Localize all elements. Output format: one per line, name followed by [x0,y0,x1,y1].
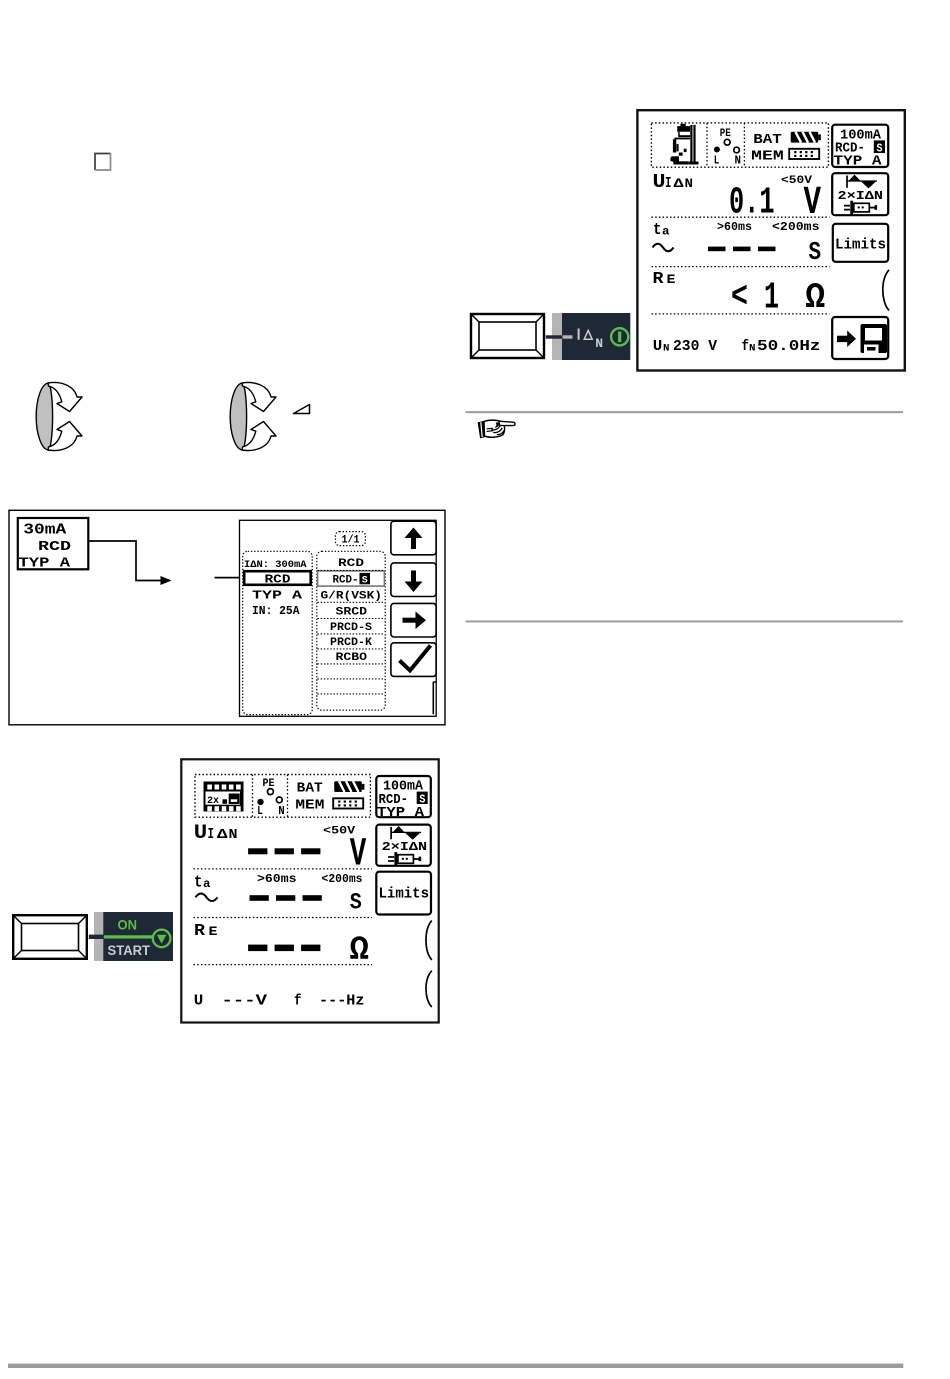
svg-text:IN: 25A: IN: 25A [252,605,300,618]
svg-text:S: S [350,890,362,916]
svg-text:Limits: Limits [835,237,886,254]
svg-text:>60ms: >60ms [257,872,297,886]
svg-text:RCBO: RCBO [336,652,368,664]
svg-text:S: S [362,574,368,586]
svg-text:2x: 2x [207,795,220,807]
svg-text:---Hz: ---Hz [319,993,365,1010]
svg-text:R: R [653,270,665,289]
svg-text:Limits: Limits [379,886,430,903]
svg-text:L: L [714,154,720,168]
svg-text:MEM: MEM [751,149,784,165]
svg-text:t: t [194,874,203,893]
svg-text:N: N [685,176,694,191]
svg-text:t: t [653,221,662,240]
svg-text:30mA: 30mA [23,522,66,539]
svg-text:I: I [665,175,672,192]
svg-text:E: E [667,272,676,287]
svg-text:N: N [278,804,285,818]
svg-text:2×IΔN: 2×IΔN [382,841,428,854]
svg-text:BAT: BAT [297,780,323,796]
svg-text:0.1: 0.1 [729,182,775,225]
svg-text:N: N [749,344,756,355]
svg-text:G/R(VSK): G/R(VSK) [321,591,383,603]
svg-text:S: S [877,141,883,155]
svg-text:RCD: RCD [338,558,365,570]
svg-text:>60ms: >60ms [717,220,752,234]
svg-text:MEM: MEM [295,797,324,813]
svg-text:Ω: Ω [350,932,370,969]
svg-text:a: a [662,225,670,239]
svg-text:PE: PE [720,128,731,140]
svg-text:V: V [350,832,367,877]
svg-text:a: a [203,877,211,891]
svg-text:f: f [294,993,302,1010]
svg-text:<200ms: <200ms [322,872,363,886]
svg-text:Δ: Δ [674,176,684,191]
svg-text:START: START [108,943,151,958]
svg-text:TYP A: TYP A [377,806,425,821]
svg-text:---V: ---V [222,993,268,1010]
svg-text:ON: ON [118,918,138,933]
svg-text:I: I [208,826,215,843]
svg-text:2×IΔN: 2×IΔN [838,190,884,203]
svg-text:N: N [663,344,670,355]
svg-text:N: N [735,154,742,168]
svg-text:E: E [209,924,218,939]
svg-text:SRCD: SRCD [336,607,368,619]
svg-text:RCD: RCD [265,573,291,586]
svg-text:PRCD-S: PRCD-S [330,622,372,634]
svg-text:L: L [257,804,263,818]
svg-text:PRCD-K: PRCD-K [330,637,372,649]
svg-text:PE: PE [263,778,275,790]
svg-text:N: N [595,336,603,351]
svg-text:RCD-: RCD- [333,574,359,586]
svg-text:1: 1 [764,277,779,320]
svg-text:f: f [742,338,750,355]
svg-text:Δ: Δ [217,828,228,843]
svg-text:50.0Hz: 50.0Hz [757,338,821,355]
svg-text:TYP A: TYP A [252,590,302,603]
svg-text:U: U [653,171,666,193]
svg-text:230 V: 230 V [673,338,717,355]
svg-text:RCD: RCD [38,539,71,555]
svg-text:TYP A: TYP A [19,556,71,572]
svg-text:<200ms: <200ms [772,220,820,234]
svg-text:S: S [809,237,822,267]
svg-text:U: U [194,993,204,1010]
svg-text:N: N [229,828,238,843]
svg-text:R: R [194,922,206,941]
svg-text:IΔN: 300mA: IΔN: 300mA [244,559,307,571]
svg-text:U: U [194,822,208,845]
svg-text:Ω: Ω [805,278,825,319]
svg-text:<: < [731,277,748,318]
svg-text:U: U [653,338,663,355]
svg-text:BAT: BAT [753,132,782,148]
svg-text:TYP A: TYP A [834,155,883,170]
svg-text:1/1: 1/1 [342,535,360,547]
svg-text:S: S [419,793,425,807]
